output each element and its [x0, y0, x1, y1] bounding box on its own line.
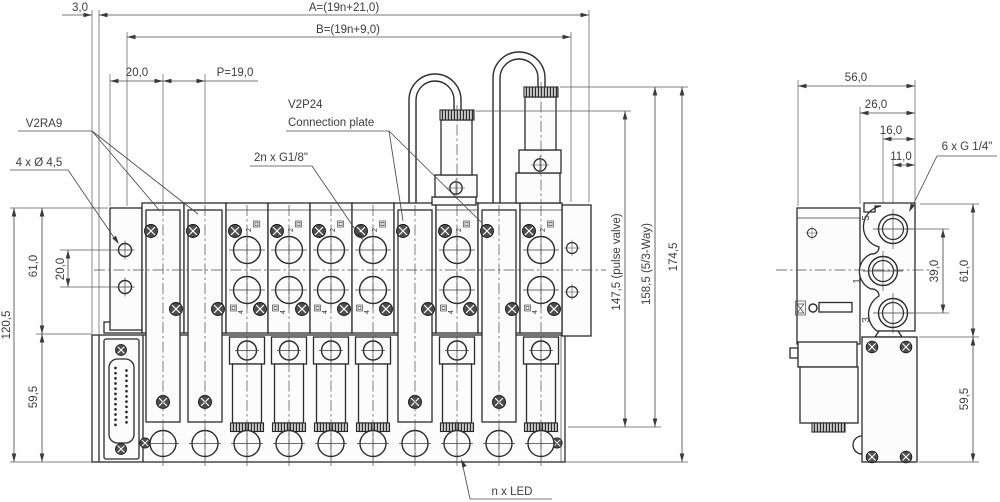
port-number-3: 3 [861, 317, 872, 323]
dim-pulse-valve: 147,5 (pulse valve) [611, 213, 623, 310]
right-end-plate [562, 205, 591, 336]
screw-icon [900, 451, 912, 463]
label-blanking-plate: V2RA9 [26, 118, 62, 130]
dim-overall-height: 174,5 [668, 243, 680, 272]
screw-icon [866, 341, 878, 353]
label-side-ports: 6 x G 1/4" [942, 141, 993, 153]
label-connection-plate-2: Connection plate [288, 117, 374, 129]
dim-five-three-way: 158,5 (5/3-Way) [641, 223, 653, 305]
dim-height-total: 120,5 [1, 311, 13, 340]
label-led: n x LED [492, 486, 533, 498]
dim-26: 26,0 [865, 99, 887, 111]
side-view: 5 1 3 [776, 203, 934, 463]
port-number-5: 5 [861, 215, 872, 221]
base-bump [853, 436, 862, 454]
dim-16: 16,0 [880, 125, 902, 137]
plate-tab [875, 331, 902, 337]
dim-height-upper: 61,0 [28, 255, 40, 277]
screw-icon [115, 344, 126, 355]
dim-hole-spacing: 20,0 [55, 258, 67, 280]
dim-pitch: P=19,0 [217, 67, 254, 79]
dim-height-lower: 59,5 [28, 386, 40, 408]
screw-icon [866, 451, 878, 463]
label-connection-plate-1: V2P24 [288, 99, 323, 111]
label-mounting-holes: 4 x Ø 4,5 [16, 157, 63, 169]
side-solenoid [790, 342, 858, 432]
dsub-connector [104, 339, 139, 459]
pulse-valve-tower [409, 74, 477, 205]
dim-edge-20: 20,0 [126, 67, 148, 79]
dim-overall-a: A=(19n+21,0) [309, 2, 380, 14]
solenoid-knurl [812, 423, 845, 432]
dim-port-spacing: 39,0 [929, 260, 941, 282]
front-view [92, 52, 606, 466]
label-working-ports: 2n x G1/8" [254, 152, 308, 164]
dim-side-upper: 61,0 [959, 260, 971, 282]
dim-offset-3: 3,0 [72, 2, 88, 14]
side-valve-body [796, 208, 861, 344]
side-base-block [853, 337, 917, 463]
left-end-plate [104, 208, 143, 333]
dim-overall-b: B=(19n+9,0) [316, 24, 380, 36]
dim-side-lower: 59,5 [959, 388, 971, 410]
screw-icon [140, 438, 150, 448]
screw-icon [115, 443, 126, 454]
port-number-1: 1 [852, 278, 863, 284]
five-three-way-tower [493, 52, 561, 203]
valve-manifold-drawing: 2 4 [0, 0, 1000, 502]
technical-drawing-page: 2 4 [0, 0, 1000, 502]
dim-depth: 56,0 [845, 72, 867, 84]
dim-11: 11,0 [890, 151, 912, 163]
screw-icon [900, 341, 912, 353]
